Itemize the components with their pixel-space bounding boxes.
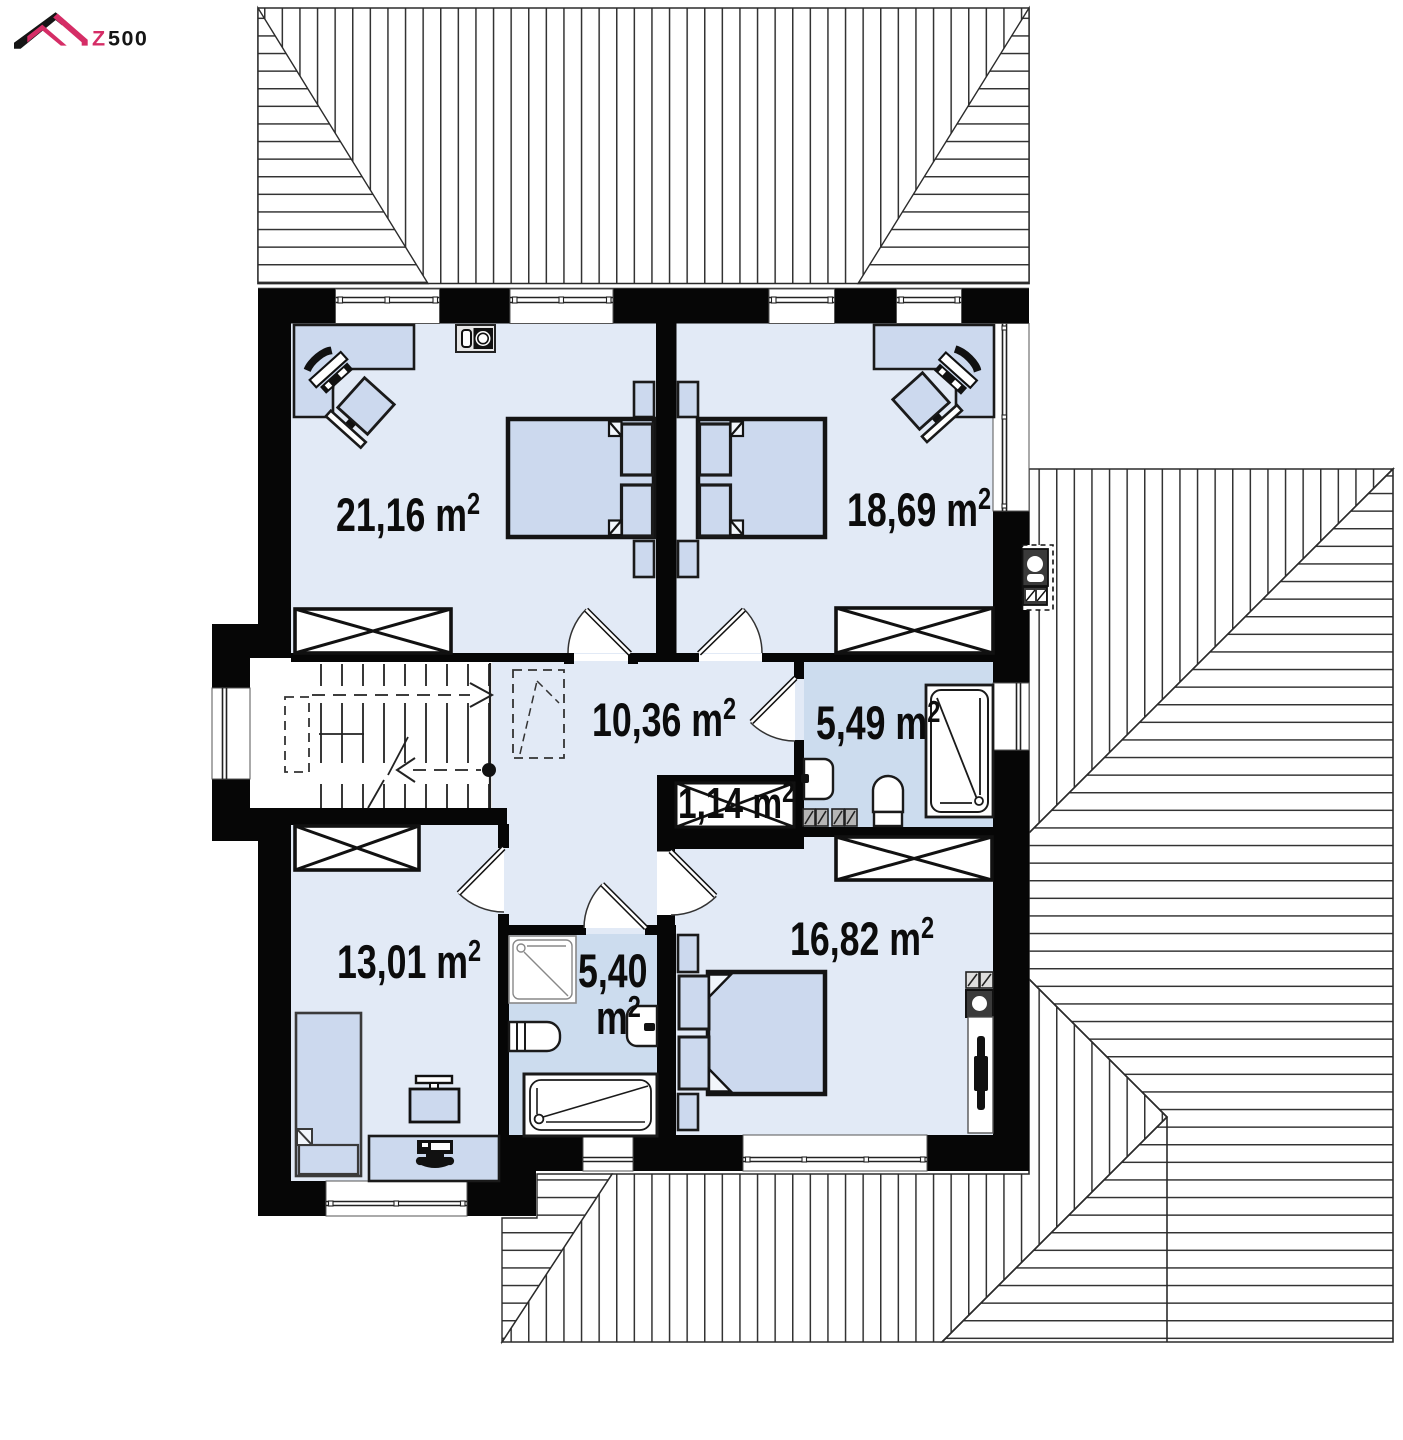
svg-text:Z: Z bbox=[92, 27, 107, 51]
svg-text:1,14 m2: 1,14 m2 bbox=[678, 777, 794, 828]
svg-text:10,36 m2: 10,36 m2 bbox=[592, 691, 736, 746]
svg-text:16,82 m2: 16,82 m2 bbox=[790, 910, 934, 965]
svg-text:5,49 m2: 5,49 m2 bbox=[816, 694, 940, 749]
svg-text:13,01 m2: 13,01 m2 bbox=[337, 933, 481, 988]
svg-text:500: 500 bbox=[108, 27, 148, 51]
svg-text:21,16 m2: 21,16 m2 bbox=[336, 486, 480, 541]
svg-text:18,69 m2: 18,69 m2 bbox=[847, 481, 991, 536]
